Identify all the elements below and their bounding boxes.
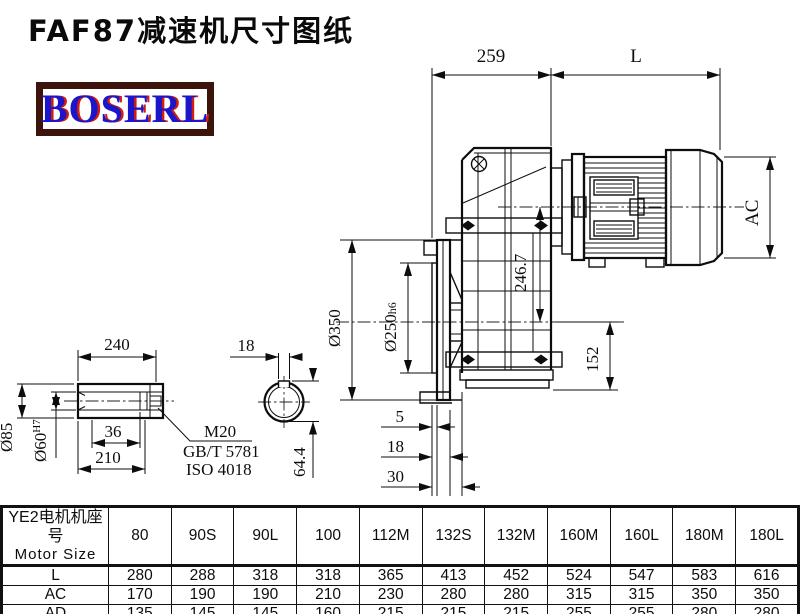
table-cell: 288 bbox=[171, 566, 234, 586]
dim-flange-pilot-dia: Ø250h6 bbox=[381, 302, 400, 352]
dim-key-width: 18 bbox=[238, 336, 255, 355]
table-cell: 350 bbox=[673, 586, 736, 605]
table-column-header: 100 bbox=[297, 507, 360, 566]
table-cell: 280 bbox=[422, 586, 485, 605]
table-cell: 215 bbox=[359, 605, 422, 614]
dim-shaft-bore-dia: Ø60H7 bbox=[31, 419, 50, 462]
gear-case bbox=[446, 148, 562, 388]
table-column-header: 90S bbox=[171, 507, 234, 566]
motor bbox=[498, 150, 744, 267]
table-cell: 145 bbox=[171, 605, 234, 614]
thread-standard-gb: GB/T 5781 bbox=[183, 442, 260, 461]
table-cell: 190 bbox=[234, 586, 297, 605]
table-header-motor-size: YE2电机机座号 Motor Size bbox=[2, 507, 109, 566]
table-cell: 255 bbox=[548, 605, 611, 614]
dim-flange-thickness: 18 bbox=[387, 437, 404, 456]
table-header-cn: YE2电机机座号 bbox=[3, 508, 108, 546]
table-cell: 190 bbox=[171, 586, 234, 605]
table-column-header: 180M bbox=[673, 507, 736, 566]
dim-motor-ac: AC bbox=[742, 200, 763, 226]
table-cell: 135 bbox=[109, 605, 172, 614]
table-cell: 318 bbox=[234, 566, 297, 586]
table-column-header: 180L bbox=[736, 507, 799, 566]
table-column-header: 132S bbox=[422, 507, 485, 566]
table-row-label: L bbox=[2, 566, 109, 586]
table-cell: 413 bbox=[422, 566, 485, 586]
drawing-sheet: FAF87减速机尺寸图纸 BOSERL 240 bbox=[0, 0, 800, 614]
dimension-drawing: 240 Ø85 Ø60H7 36 210 M20 GB/T 5781 ISO 4 bbox=[0, 0, 800, 505]
dim-shaft-step: 36 bbox=[105, 422, 122, 441]
motor-size-table: YE2电机机座号 Motor Size 8090S90L100112M132S1… bbox=[0, 505, 800, 614]
table-cell: 255 bbox=[610, 605, 673, 614]
dim-shaft-outer-dia: Ø85 bbox=[0, 423, 16, 452]
table-column-header: 112M bbox=[359, 507, 422, 566]
table-cell: 365 bbox=[359, 566, 422, 586]
table-cell: 524 bbox=[548, 566, 611, 586]
table-cell: 350 bbox=[736, 586, 799, 605]
table-row: AD135145145160215215215255255280280 bbox=[2, 605, 799, 614]
table-cell: 230 bbox=[359, 586, 422, 605]
table-cell: 215 bbox=[485, 605, 548, 614]
table-row-label: AD bbox=[2, 605, 109, 614]
dim-shaft-bore-depth: 210 bbox=[95, 448, 121, 467]
table-column-header: 90L bbox=[234, 507, 297, 566]
table-cell: 160 bbox=[297, 605, 360, 614]
table-cell: 583 bbox=[673, 566, 736, 586]
table-cell: 315 bbox=[610, 586, 673, 605]
table-column-header: 160L bbox=[610, 507, 673, 566]
table-cell: 616 bbox=[736, 566, 799, 586]
table-header-row: YE2电机机座号 Motor Size 8090S90L100112M132S1… bbox=[2, 507, 799, 566]
table-row-label: AC bbox=[2, 586, 109, 605]
table-cell: 145 bbox=[234, 605, 297, 614]
output-flange bbox=[420, 240, 462, 403]
dim-motor-length: L bbox=[630, 46, 642, 67]
dim-flange-outer-dia: Ø350 bbox=[325, 309, 344, 347]
dim-shaft-length: 240 bbox=[104, 335, 130, 354]
gearbox-assembly-view: 259 L Ø350 Ø250h6 bbox=[325, 46, 776, 496]
table-cell: 315 bbox=[548, 586, 611, 605]
thread-note: M20 GB/T 5781 ISO 4018 bbox=[158, 408, 260, 479]
table-cell: 280 bbox=[673, 605, 736, 614]
table-cell: 280 bbox=[109, 566, 172, 586]
dim-total-depth: 30 bbox=[387, 467, 404, 486]
hollow-shaft-side-view: 240 Ø85 Ø60H7 36 210 bbox=[0, 335, 174, 474]
table-cell: 547 bbox=[610, 566, 673, 586]
table-cell: 210 bbox=[297, 586, 360, 605]
dim-pilot-depth: 5 bbox=[396, 407, 405, 426]
dim-axis-offset: 246.7 bbox=[511, 253, 530, 292]
table-cell: 318 bbox=[297, 566, 360, 586]
table-row: L280288318318365413452524547583616 bbox=[2, 566, 799, 586]
flange-depth-dims: 5 18 30 bbox=[381, 392, 480, 496]
table-cell: 280 bbox=[485, 586, 548, 605]
table-row: AC170190190210230280280315315350350 bbox=[2, 586, 799, 605]
table-cell: 170 bbox=[109, 586, 172, 605]
table-cell: 452 bbox=[485, 566, 548, 586]
table-header-en: Motor Size bbox=[3, 546, 108, 564]
dim-key-height: 64.4 bbox=[290, 447, 309, 477]
table-column-header: 80 bbox=[109, 507, 172, 566]
table-cell: 280 bbox=[736, 605, 799, 614]
dim-front-length: 259 bbox=[477, 46, 506, 67]
thread-size: M20 bbox=[204, 422, 236, 441]
thread-standard-iso: ISO 4018 bbox=[186, 460, 252, 479]
table-cell: 215 bbox=[422, 605, 485, 614]
table-column-header: 160M bbox=[548, 507, 611, 566]
motor-size-table-wrap: YE2电机机座号 Motor Size 8090S90L100112M132S1… bbox=[0, 505, 800, 614]
dim-case-bottom: 152 bbox=[583, 347, 602, 373]
table-column-header: 132M bbox=[485, 507, 548, 566]
